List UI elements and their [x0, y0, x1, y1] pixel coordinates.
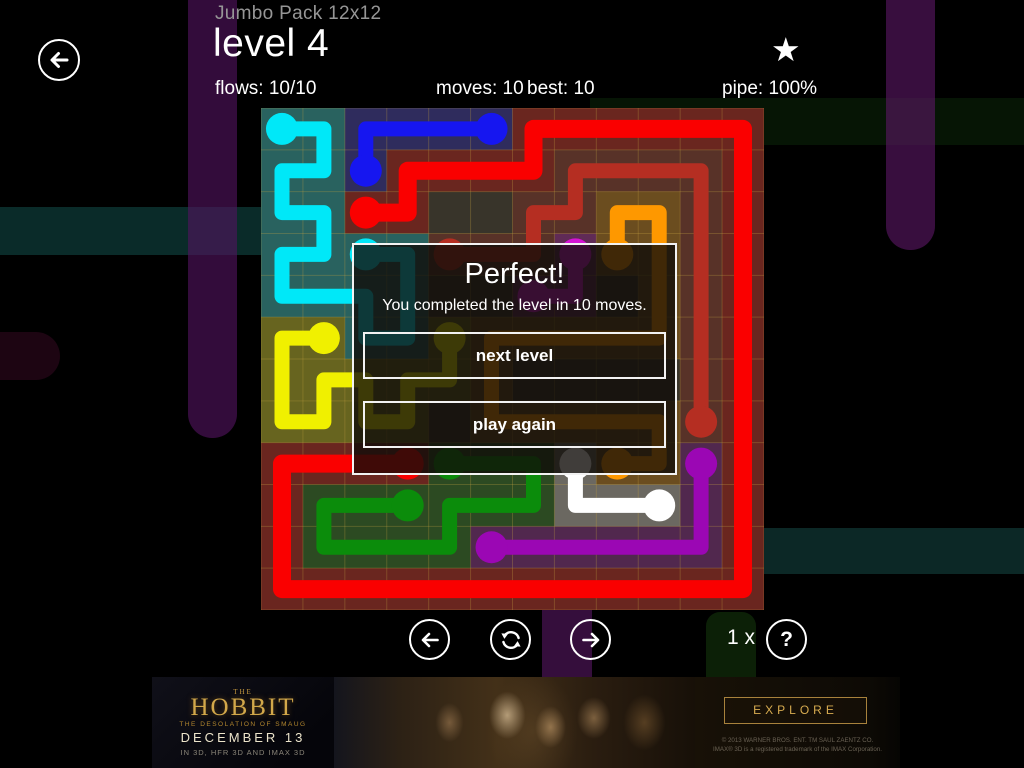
play-again-button[interactable]: play again [363, 401, 666, 448]
ad-copyright-line1: © 2013 WARNER BROS. ENT. TM SAUL ZAENTZ … [700, 737, 895, 744]
left-arrow-icon [418, 628, 442, 652]
ad-copyright-line2: IMAX® 3D is a registered trademark of th… [700, 746, 895, 753]
flow-endpoint-yellow[interactable] [308, 322, 340, 354]
flow-endpoint-purple[interactable] [476, 531, 508, 563]
question-mark-icon: ? [780, 628, 793, 652]
dialog-message: You completed the level in 10 moves. [354, 297, 675, 315]
flow-endpoint-red[interactable] [350, 197, 382, 229]
back-button[interactable] [38, 39, 80, 81]
flow-endpoint-maroon[interactable] [685, 406, 717, 438]
star-icon: ★ [771, 30, 801, 69]
ad-title-block: THE HOBBIT THE DESOLATION OF SMAUG DECEM… [152, 677, 334, 768]
flows-counter: flows: 10/10 [215, 78, 316, 100]
ad-tagline: THE DESOLATION OF SMAUG [179, 721, 306, 728]
right-arrow-icon [579, 628, 603, 652]
maroon-stub-left [0, 332, 60, 380]
teal-band-bottom [758, 528, 1024, 574]
ad-formats: IN 3D, HFR 3D AND IMAX 3D [180, 748, 305, 757]
ad-action-block: EXPLORE © 2013 WARNER BROS. ENT. TM SAUL… [695, 677, 900, 768]
page-title: level 4 [213, 22, 329, 66]
refresh-icon [499, 628, 523, 652]
flow-endpoint-white[interactable] [643, 489, 675, 521]
dialog-title: Perfect! [354, 258, 675, 291]
purple-band-right [886, 0, 935, 250]
restart-level-button[interactable] [490, 619, 531, 660]
next-level-nav-button[interactable] [570, 619, 611, 660]
flow-endpoint-purple[interactable] [685, 448, 717, 480]
flow-endpoint-blue[interactable] [476, 113, 508, 145]
moves-counter: moves: 10 [436, 78, 524, 100]
next-level-button[interactable]: next level [363, 332, 666, 379]
hint-button[interactable]: ? [766, 619, 807, 660]
flow-endpoint-green[interactable] [392, 489, 424, 521]
ad-brand: HOBBIT [190, 696, 295, 720]
advertisement-banner[interactable]: THE HOBBIT THE DESOLATION OF SMAUG DECEM… [152, 677, 900, 768]
best-counter: best: 10 [527, 78, 595, 100]
hint-count-label: 1 x [727, 626, 755, 650]
game-screen: Jumbo Pack 12x12 level 4 flows: 10/10 mo… [0, 0, 1024, 768]
ad-artwork [334, 677, 695, 768]
level-complete-dialog: Perfect! You completed the level in 10 m… [352, 243, 677, 475]
ad-release-date: DECEMBER 13 [181, 730, 306, 745]
pipe-counter: pipe: 100% [722, 78, 817, 100]
previous-level-button[interactable] [409, 619, 450, 660]
flow-endpoint-blue[interactable] [350, 155, 382, 187]
back-arrow-icon [46, 47, 72, 73]
explore-button[interactable]: EXPLORE [724, 697, 867, 724]
flow-endpoint-cyan[interactable] [266, 113, 298, 145]
